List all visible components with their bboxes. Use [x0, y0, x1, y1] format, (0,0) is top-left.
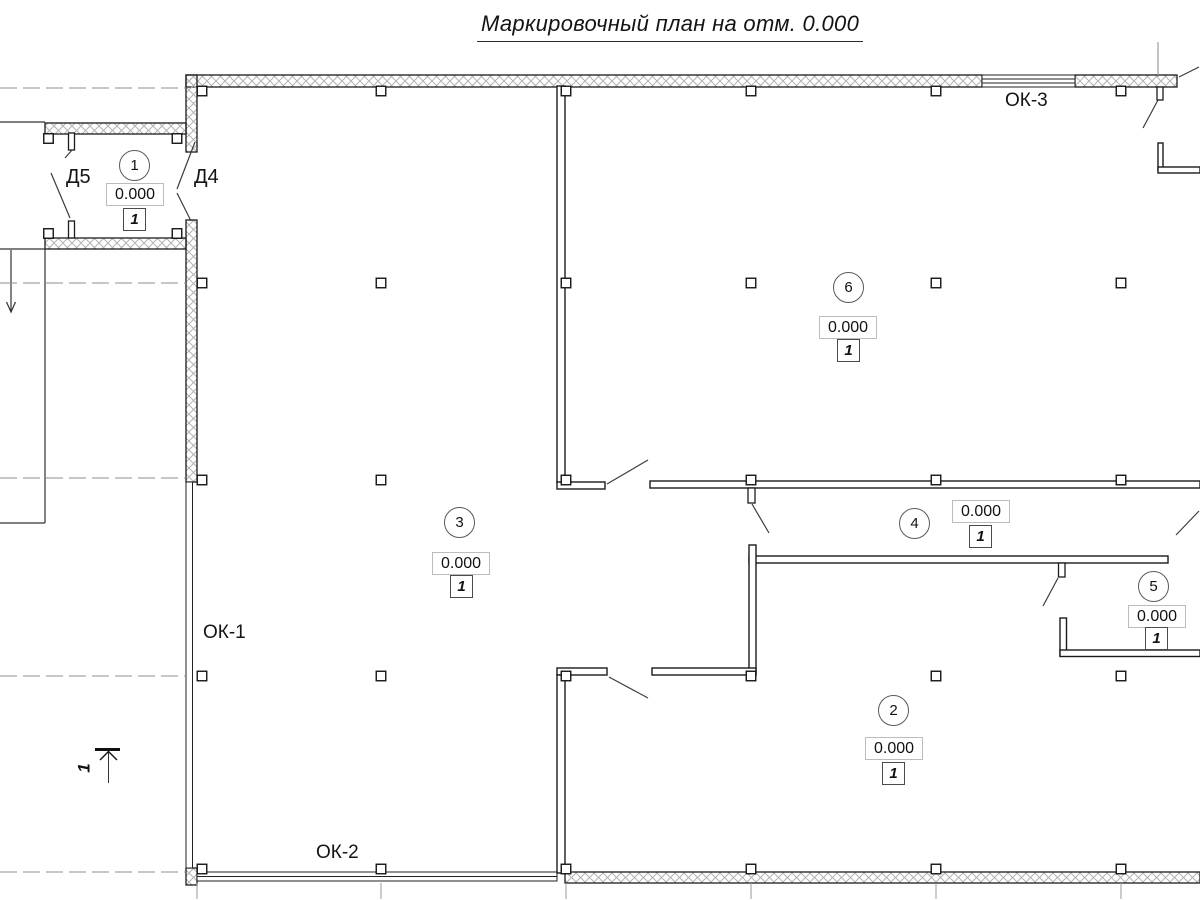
grid-stub-lines	[197, 42, 1158, 899]
column-grid-squares	[44, 86, 1126, 874]
down-arrow	[7, 250, 16, 312]
hatched-walls	[45, 75, 1200, 885]
column-square	[746, 475, 756, 485]
column-square	[376, 475, 386, 485]
room-number-circle: 4	[899, 508, 930, 539]
column-square	[197, 864, 207, 874]
column-square	[197, 671, 207, 681]
window-label-ok1: ОК-1	[203, 622, 246, 644]
column-square	[1116, 864, 1126, 874]
annex-outline	[0, 122, 45, 523]
column-square	[197, 278, 207, 288]
room-elevation-box: 0.000	[952, 500, 1010, 523]
window-ok3-symbol	[982, 75, 1075, 87]
plan-title: Маркировочный план на отм. 0.000	[477, 11, 863, 42]
door-label-d5: Д5	[66, 166, 91, 189]
room-number-circle: 2	[878, 695, 909, 726]
column-square	[376, 278, 386, 288]
column-square	[376, 671, 386, 681]
column-square	[561, 278, 571, 288]
column-square	[931, 475, 941, 485]
room-elevation-box: 0.000	[865, 737, 923, 760]
column-square	[1116, 86, 1126, 96]
plan-linework	[0, 0, 1200, 900]
column-square	[172, 229, 182, 239]
column-square	[44, 229, 54, 239]
column-square	[1116, 671, 1126, 681]
column-square	[197, 86, 207, 96]
column-square	[746, 86, 756, 96]
room-elevation-box: 0.000	[432, 552, 490, 575]
column-square	[561, 671, 571, 681]
room-type-box: 1	[1145, 627, 1168, 650]
room-type-box: 1	[969, 525, 992, 548]
room-number-circle: 5	[1138, 571, 1169, 602]
room-type-box: 1	[450, 575, 473, 598]
window-symbols	[186, 75, 1075, 881]
column-square	[1116, 278, 1126, 288]
door-label-d4: Д4	[194, 166, 219, 189]
column-square	[376, 86, 386, 96]
column-square	[1116, 475, 1126, 485]
column-square	[746, 671, 756, 681]
room-elevation-box: 0.000	[1128, 605, 1186, 628]
column-square	[172, 134, 182, 144]
column-square	[931, 671, 941, 681]
room-type-box: 1	[882, 762, 905, 785]
room-elevation-box: 0.000	[819, 316, 877, 339]
column-square	[44, 134, 54, 144]
column-square	[931, 864, 941, 874]
room-elevation-box: 0.000	[106, 183, 164, 206]
column-square	[931, 278, 941, 288]
column-square	[197, 475, 207, 485]
column-square	[376, 864, 386, 874]
room-number-circle: 3	[444, 507, 475, 538]
window-ok1-symbol	[186, 482, 193, 868]
room-number-circle: 6	[833, 272, 864, 303]
column-square	[561, 475, 571, 485]
room-type-box: 1	[123, 208, 146, 231]
room-number-circle: 1	[119, 150, 150, 181]
section-number-label: 1	[75, 763, 95, 772]
room-type-box: 1	[837, 339, 860, 362]
column-square	[561, 86, 571, 96]
door-swings	[51, 67, 1199, 698]
column-square	[561, 864, 571, 874]
column-square	[931, 86, 941, 96]
floor-plan-canvas: Маркировочный план на отм. 0.000 ОК-1 ОК…	[0, 0, 1200, 900]
column-square	[746, 278, 756, 288]
section-cut-mark	[95, 750, 120, 784]
column-square	[746, 864, 756, 874]
window-label-ok2: ОК-2	[316, 842, 359, 864]
window-label-ok3: ОК-3	[1005, 90, 1048, 112]
